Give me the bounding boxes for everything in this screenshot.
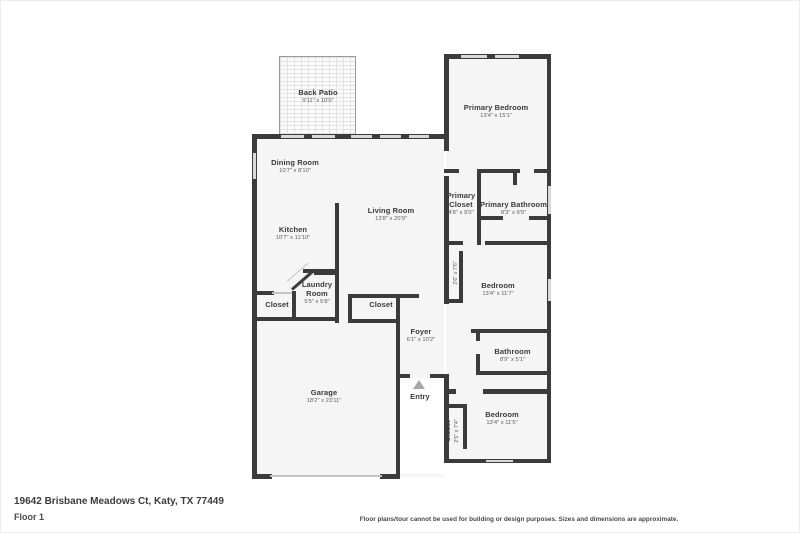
room-name: Foyer — [395, 327, 447, 336]
room-name: Kitchen — [253, 225, 333, 234]
room-name: Bedroom — [457, 410, 547, 419]
wall — [534, 169, 547, 173]
wall — [396, 374, 410, 378]
room-label-primary-bathroom: Primary Bathroom 8'3" x 9'0" — [471, 200, 556, 218]
room-dims: 8'9" x 5'1" — [480, 356, 545, 365]
property-address: 19642 Brisbane Meadows Ct, Katy, TX 7744… — [14, 496, 224, 507]
room-name: Primary Bathroom — [471, 200, 556, 209]
room-label-bedroom-3: Bedroom 13'4" x 11'5" — [457, 410, 547, 428]
room-name: Back Patio — [278, 88, 358, 97]
window — [380, 135, 401, 138]
floor-plan-page: Back Patio 9'11" x 10'0" Primary Bedroom… — [0, 0, 800, 533]
room-dims: 5'5" x 5'8" — [296, 298, 338, 307]
room-label-laundry-room: Laundry Room 5'5" x 5'8" — [296, 280, 338, 307]
wall — [471, 329, 547, 333]
wall — [485, 241, 547, 245]
room-name: Living Room — [351, 206, 431, 215]
window — [548, 279, 551, 301]
wall — [444, 169, 459, 173]
patio-door — [312, 135, 335, 138]
window — [351, 135, 372, 138]
room-label-living-room: Living Room 13'8" x 20'9" — [351, 206, 431, 224]
room-label-garage: Garage 18'2" x 23'11" — [284, 388, 364, 406]
wall — [252, 291, 274, 295]
room-name: Closet — [356, 300, 406, 309]
wall — [444, 389, 456, 394]
entry-arrow-icon — [413, 380, 425, 389]
room-dims: 10'7" x 11'10" — [253, 234, 333, 243]
wall — [476, 333, 480, 341]
wall — [513, 169, 517, 185]
room-label-bathroom: Bathroom 8'9" x 5'1" — [480, 347, 545, 365]
window — [409, 135, 429, 138]
room-dims: 9'11" x 10'0" — [278, 97, 358, 106]
room-dims: 13'4" x 15'1" — [446, 112, 546, 121]
room-label-closet-foyer: Closet — [356, 300, 406, 309]
wall — [252, 317, 339, 321]
room-name: Primary Bedroom — [446, 103, 546, 112]
room-label-primary-bedroom: Primary Bedroom 13'4" x 15'1" — [446, 103, 546, 121]
door-line — [272, 292, 292, 294]
wall — [252, 474, 272, 479]
room-dims: 10'7" x 8'10" — [255, 167, 335, 176]
room-label-entry: Entry — [400, 392, 440, 401]
room-label-bedroom-2: Bedroom 13'4" x 11'7" — [453, 281, 543, 299]
room-name: Laundry Room — [296, 280, 338, 298]
room-dims: 13'4" x 11'7" — [453, 290, 543, 299]
floor-label: Floor 1 — [14, 512, 44, 522]
room-label-foyer: Foyer 6'1" x 10'2" — [395, 327, 447, 345]
wall — [348, 319, 400, 323]
room-dims: 13'8" x 20'9" — [351, 215, 431, 224]
room-label-closet-3: Closet 2'5" x 7'4" — [444, 401, 462, 461]
room-label-dining-room: Dining Room 10'7" x 8'10" — [255, 158, 335, 176]
room-name: Bedroom — [453, 281, 543, 290]
room-dims: 13'4" x 11'5" — [457, 419, 547, 428]
room-name: Entry — [400, 392, 440, 401]
wall — [348, 294, 419, 298]
room-dims: 8'3" x 9'0" — [471, 209, 556, 218]
room-label-kitchen: Kitchen 10'7" x 11'10" — [253, 225, 333, 243]
patio-door — [281, 135, 304, 138]
window — [486, 460, 513, 462]
room-name: Dining Room — [255, 158, 335, 167]
room-name: Closet — [444, 262, 452, 283]
disclaimer-text: Floor plans/tour cannot be used for buil… — [269, 516, 769, 523]
garage-door-line — [270, 475, 382, 477]
room-dims: 18'2" x 23'11" — [284, 397, 364, 406]
room-label-back-patio: Back Patio 9'11" x 10'0" — [278, 88, 358, 106]
room-name: Closet — [445, 420, 453, 441]
room-name: Bathroom — [480, 347, 545, 356]
wall — [483, 389, 547, 394]
room-name: Garage — [284, 388, 364, 397]
wall — [335, 203, 339, 273]
room-label-closet-kitchen: Closet — [257, 300, 297, 309]
wall — [476, 371, 547, 375]
room-name: Closet — [257, 300, 297, 309]
room-dims: 2'5" x 7'4" — [453, 419, 461, 443]
wall — [547, 54, 551, 463]
window — [495, 55, 519, 58]
room-dims: 6'1" x 10'2" — [395, 336, 447, 345]
window — [461, 55, 487, 58]
